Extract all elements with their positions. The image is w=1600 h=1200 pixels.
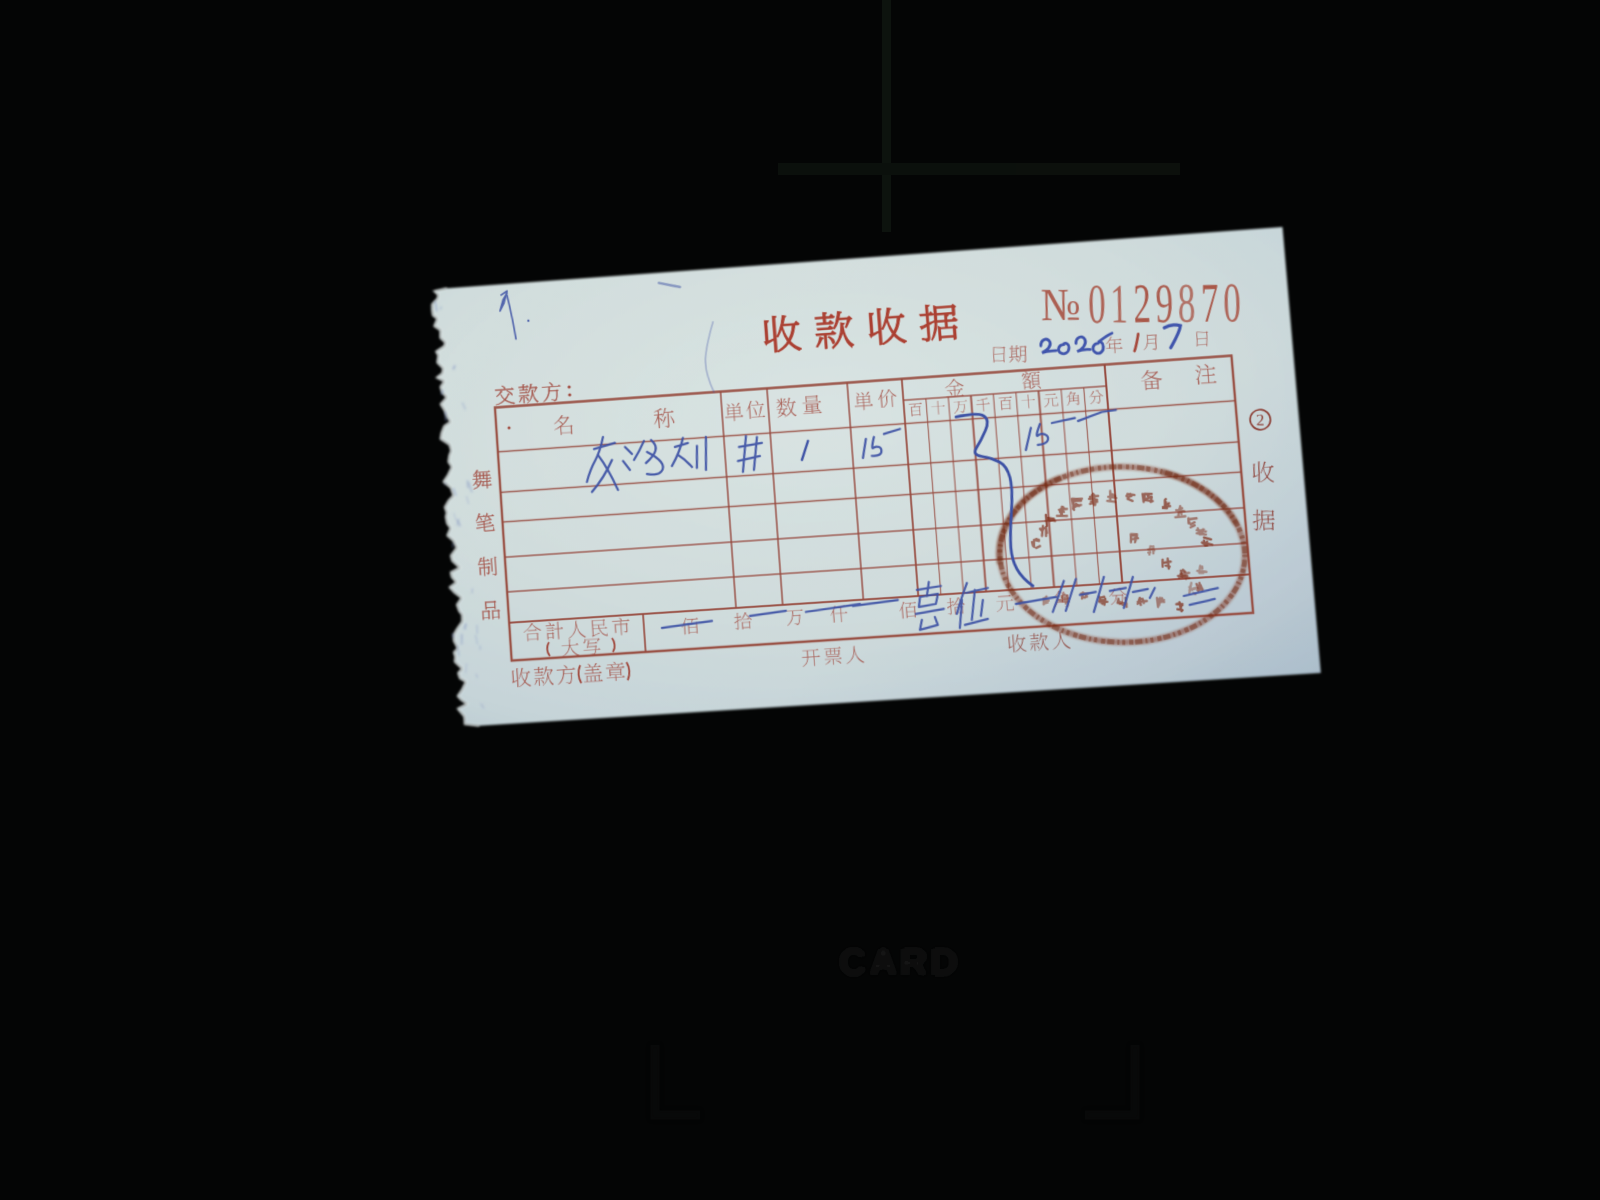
svg-text:№: № <box>1040 280 1080 331</box>
svg-text:2: 2 <box>1256 412 1264 430</box>
svg-text:2: 2 <box>1133 273 1152 335</box>
svg-text:CARD: CARD <box>839 942 961 984</box>
svg-text:0: 0 <box>1223 272 1242 334</box>
svg-text:7: 7 <box>1200 272 1219 334</box>
svg-text:0: 0 <box>1088 273 1107 335</box>
svg-text:1: 1 <box>1110 273 1129 335</box>
